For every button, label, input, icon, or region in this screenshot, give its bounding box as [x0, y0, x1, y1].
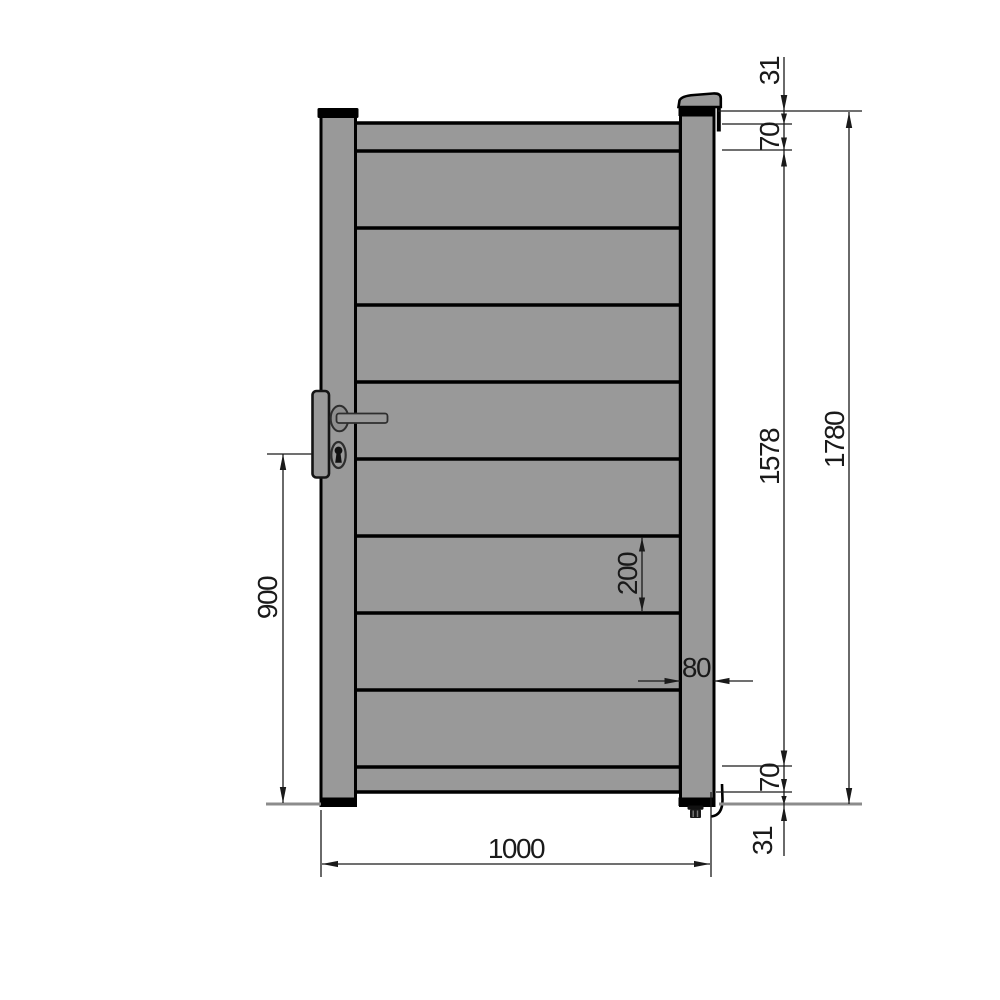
dim-post-width-label: 80 — [682, 652, 711, 683]
dim-right-stack: 31 70 1578 70 31 — [747, 56, 787, 856]
arrowhead — [781, 751, 788, 767]
right-post — [679, 93, 723, 818]
dim-handle-height: 900 — [252, 454, 286, 803]
right-post-cap — [679, 93, 721, 107]
arrowhead — [280, 454, 286, 470]
arrowhead — [781, 806, 787, 821]
dim-infill-height-label: 1578 — [754, 428, 785, 485]
dim-total-height: 1780 — [819, 112, 852, 804]
dim-top-rail-label: 70 — [754, 122, 785, 151]
dim-top-offset-label: 31 — [754, 56, 785, 85]
foot-bolt-nut — [690, 810, 701, 819]
right-post-bottom-band — [679, 798, 716, 807]
arrowhead — [714, 678, 730, 684]
gate-drawing: 31 70 1578 70 31 1780 900 200 80 1 — [0, 0, 1000, 1000]
handle-lever — [337, 414, 388, 424]
gate-leaf — [355, 123, 681, 792]
dim-total-width-label: 1000 — [488, 833, 545, 864]
arrowhead — [846, 112, 852, 128]
post-foot-bolt — [688, 806, 704, 819]
foot-bolt-flange — [688, 806, 704, 810]
arrowhead — [781, 95, 788, 111]
dim-slat-height-label: 200 — [612, 552, 643, 595]
arrowhead — [280, 787, 286, 803]
dim-total-width: 1000 — [322, 833, 710, 867]
dim-bottom-rail-label: 70 — [754, 763, 785, 792]
left-post-bottom-band — [320, 798, 358, 807]
dim-bottom-offset-label: 31 — [747, 826, 778, 855]
dim-handle-height-label: 900 — [252, 576, 283, 619]
arrowhead — [322, 861, 338, 867]
arrowhead — [781, 114, 787, 125]
arrowhead — [781, 152, 787, 167]
dim-total-height-label: 1780 — [819, 411, 850, 468]
arrowhead — [846, 788, 852, 804]
lock-plate — [313, 391, 330, 478]
arrowhead — [694, 861, 710, 867]
technical-drawing-canvas: 31 70 1578 70 31 1780 900 200 80 1 — [0, 0, 1000, 1000]
latch-stile — [681, 115, 715, 806]
left-post-cap — [318, 108, 359, 118]
